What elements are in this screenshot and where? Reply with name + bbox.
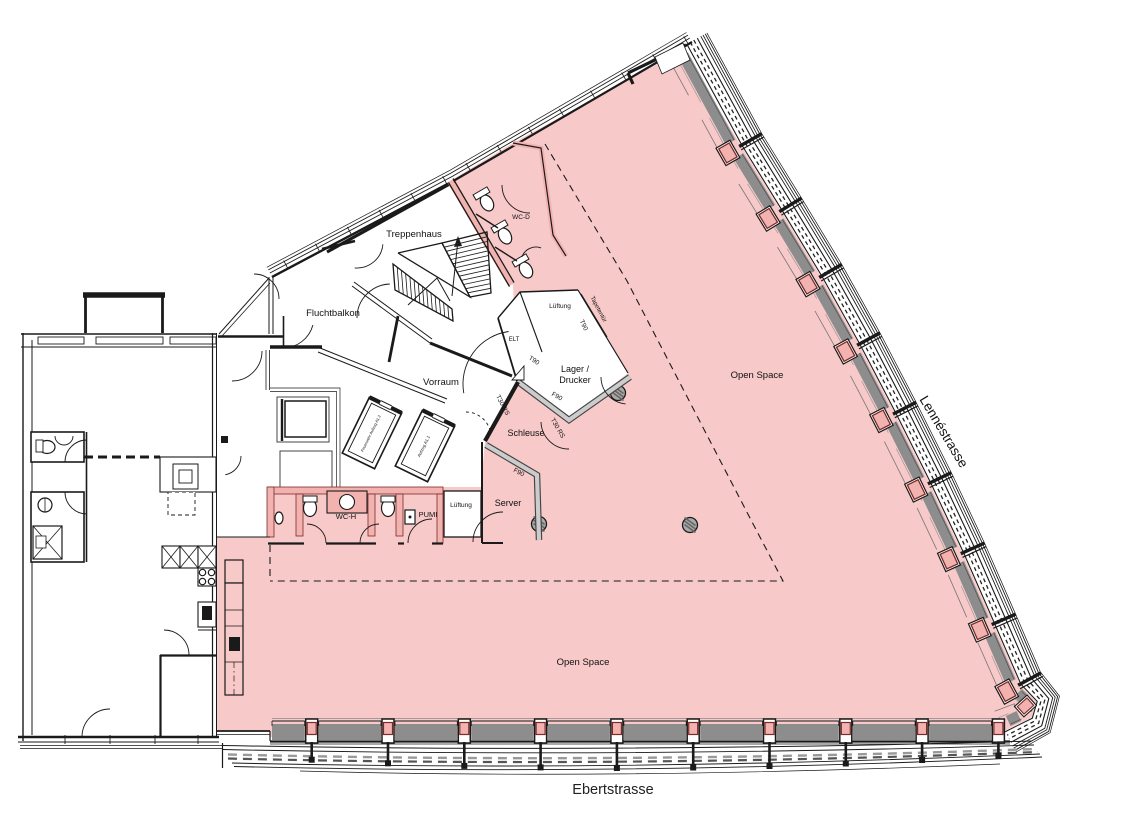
svg-text:Vorraum: Vorraum [423,377,459,388]
svg-text:Treppenhaus: Treppenhaus [386,229,442,240]
svg-text:Lüftung: Lüftung [450,502,472,509]
svg-text:Open Space: Open Space [557,657,610,668]
svg-text:Schleuse: Schleuse [507,428,544,438]
svg-text:Lüftung: Lüftung [549,303,571,310]
svg-text:Fluchtbalkon: Fluchtbalkon [306,308,360,319]
svg-text:Lager /: Lager / [561,364,590,374]
svg-text:ELT: ELT [509,337,520,343]
svg-text:Ebertstrasse: Ebertstrasse [572,782,653,798]
svg-text:PUMI: PUMI [419,510,438,519]
svg-text:WC-D: WC-D [512,214,530,221]
svg-text:WC-H: WC-H [336,512,356,521]
svg-text:Drucker: Drucker [559,375,591,385]
svg-text:Open Space: Open Space [731,370,784,381]
svg-text:Server: Server [495,498,522,508]
